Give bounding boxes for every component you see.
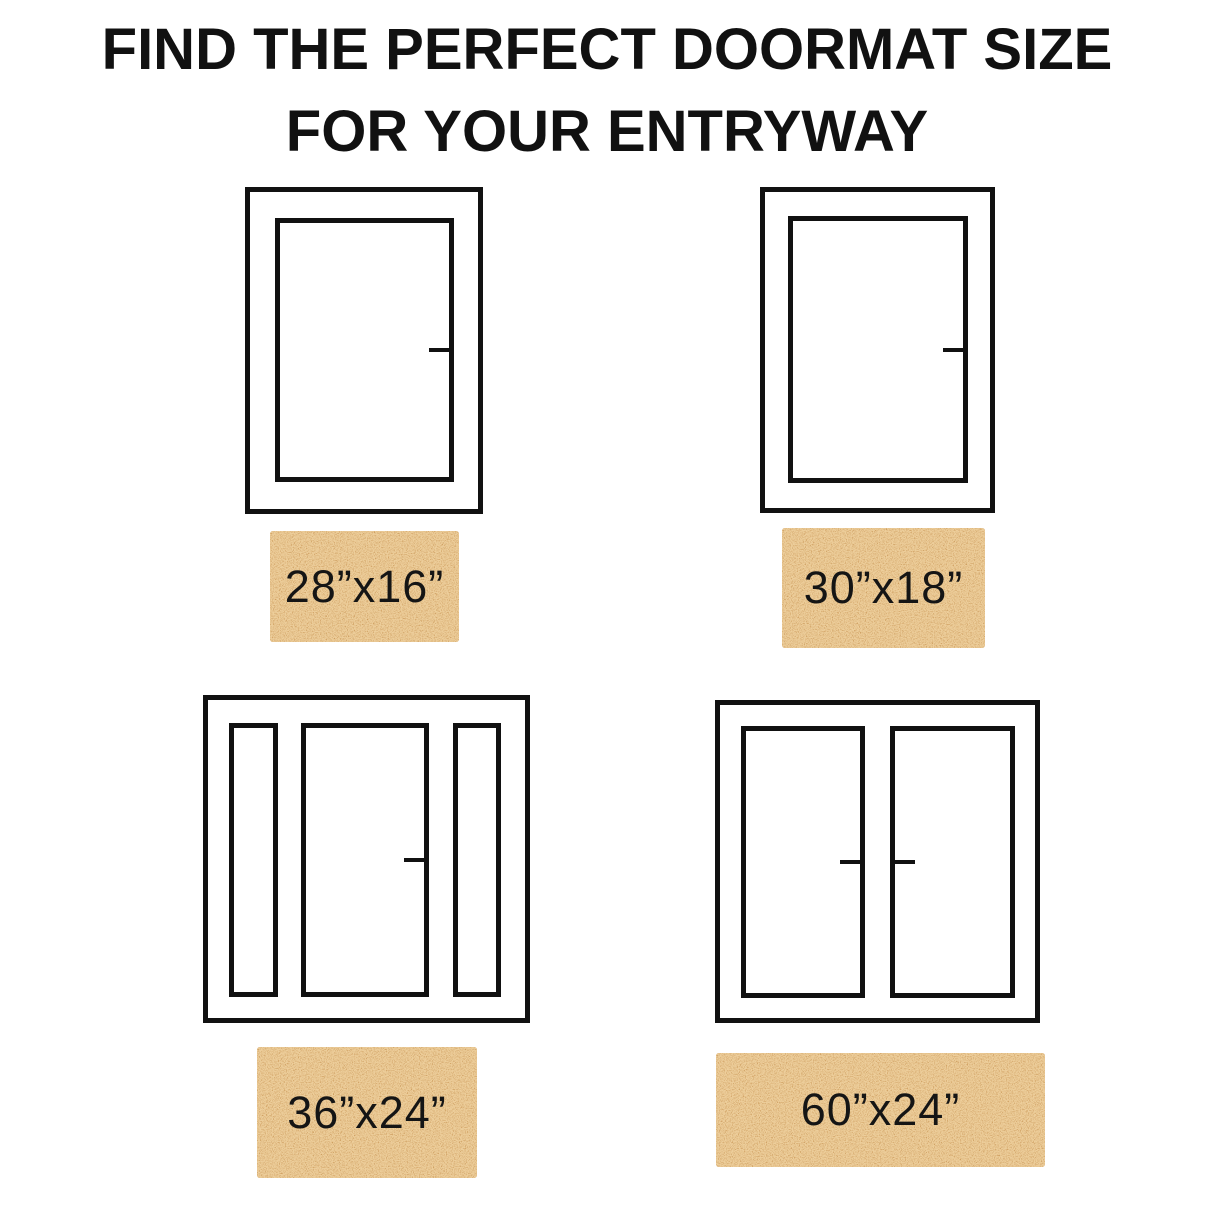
door-handle-icon (429, 348, 449, 352)
page-title-line-1: FIND THE PERFECT DOORMAT SIZE (0, 9, 1214, 91)
right-door-panel (890, 726, 1015, 998)
door-panel (275, 218, 454, 482)
door-handle-icon (840, 860, 860, 864)
doormat-size-label: 30”x18” (804, 562, 964, 614)
doormat-36x24: 36”x24” (257, 1047, 477, 1178)
door-with-sidelights-diagram (203, 695, 530, 1023)
doormat-60x24: 60”x24” (716, 1053, 1045, 1167)
doormat-size-label: 36”x24” (287, 1087, 447, 1139)
left-sidelight-panel (229, 723, 278, 997)
doormat-size-label: 60”x24” (801, 1084, 961, 1136)
single-door-diagram-1 (245, 187, 483, 514)
page-title: FIND THE PERFECT DOORMAT SIZE FOR YOUR E… (0, 9, 1214, 173)
double-door-diagram (715, 700, 1040, 1023)
doormat-30x18: 30”x18” (782, 528, 985, 648)
right-sidelight-panel (453, 723, 501, 997)
doormat-28x16: 28”x16” (270, 531, 459, 642)
door-panel (301, 723, 429, 997)
left-door-panel (741, 726, 865, 998)
single-door-diagram-2 (760, 187, 995, 513)
doormat-size-label: 28”x16” (285, 561, 445, 613)
door-handle-icon (895, 860, 915, 864)
doormat-size-infographic: FIND THE PERFECT DOORMAT SIZE FOR YOUR E… (0, 0, 1214, 1214)
door-handle-icon (943, 348, 963, 352)
door-handle-icon (404, 858, 424, 862)
page-title-line-2: FOR YOUR ENTRYWAY (0, 91, 1214, 173)
door-panel (788, 216, 968, 483)
